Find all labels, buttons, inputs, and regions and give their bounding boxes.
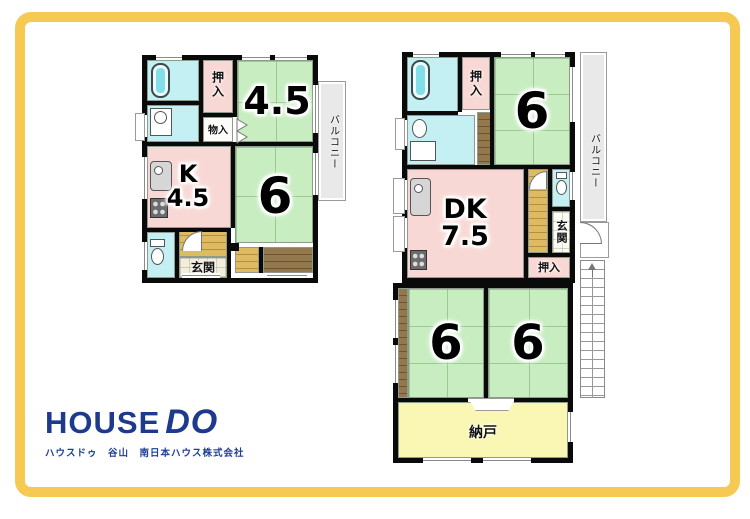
room-6-top-size: 6 <box>515 86 550 136</box>
wall-segment <box>514 398 568 402</box>
engawa-strip-wood <box>263 247 313 273</box>
stove-icon <box>150 198 168 218</box>
room-6-left-size: 6 <box>429 319 462 367</box>
kitchen-size: 4.5 <box>167 186 210 210</box>
logo-do-text: DO <box>165 403 218 441</box>
window-marker <box>242 55 270 60</box>
window-marker <box>275 55 307 60</box>
wall-segment <box>490 57 494 165</box>
window-marker <box>313 85 318 133</box>
balcony-label: バルコニー <box>587 134 602 189</box>
stairs-arrow-stem <box>592 269 593 277</box>
wall-segment <box>484 288 488 398</box>
wall-segment <box>227 228 231 278</box>
wall-segment <box>231 243 239 251</box>
wall-segment <box>548 169 552 253</box>
window-marker <box>142 242 147 270</box>
window-marker <box>483 458 531 463</box>
sink-basin-icon <box>154 111 167 124</box>
floor-plan-right: バルコニー <box>383 52 623 467</box>
wall-segment <box>233 60 237 117</box>
kitchen-faucet-icon <box>414 184 423 193</box>
genkan-label: 玄関 <box>553 220 569 244</box>
wall-segment <box>407 165 570 169</box>
window-marker <box>393 300 398 338</box>
toilet-bowl-icon <box>556 180 567 195</box>
wall-segment <box>147 101 199 105</box>
kitchen-letter: K <box>167 162 210 186</box>
wall-segment <box>407 111 458 115</box>
floor-plan-left: バルコニー 押入 物入 4.5 K <box>142 45 354 285</box>
wall-segment <box>231 146 235 228</box>
window-marker <box>501 52 531 57</box>
wall-segment <box>147 142 313 146</box>
stove-icon <box>410 250 427 270</box>
bay-counter <box>395 118 405 150</box>
logo-subtitle: ハウスドゥ 谷山 南日本ハウス株式会社 <box>45 445 245 459</box>
room-4-5-size: 4.5 <box>243 82 310 120</box>
engawa-strip-wood <box>398 288 408 398</box>
nando-label: 納戸 <box>469 422 497 442</box>
balcony-right-plan: バルコニー <box>580 52 607 222</box>
wall-segment <box>147 228 231 232</box>
bay-step <box>468 398 516 411</box>
window-marker <box>142 157 147 199</box>
wall-segment <box>524 169 528 278</box>
monoire-label: 物入 <box>208 122 228 137</box>
window-marker <box>313 153 318 195</box>
window-marker <box>267 273 307 278</box>
sink-basin-icon <box>412 119 427 138</box>
balcony-left-plan: バルコニー <box>318 81 346 201</box>
toilet-bowl-icon <box>151 248 164 265</box>
bay-counter <box>135 113 145 141</box>
window-marker <box>393 345 398 383</box>
window-marker <box>568 412 573 442</box>
oshiire-top-label: 押入 <box>468 70 485 98</box>
bathtub-icon <box>151 63 170 98</box>
window-marker <box>423 458 471 463</box>
kitchen-label: K 4.5 <box>167 162 210 210</box>
wall-segment <box>203 113 233 117</box>
bay-window <box>393 178 405 214</box>
dk-letters: DK <box>441 196 489 223</box>
kitchen-faucet-icon <box>154 166 163 175</box>
genkan-label: 玄関 <box>191 259 215 276</box>
oshiire-mid-label: 押入 <box>538 259 560 275</box>
window-marker <box>570 67 575 122</box>
oshiire-label: 押入 <box>210 71 227 99</box>
balcony-label: バルコニー <box>326 115 341 170</box>
stairs-rail <box>592 270 593 398</box>
logo-house-text: HOUSE <box>45 405 160 440</box>
bathtub-icon <box>411 60 430 100</box>
wall-segment <box>175 232 179 278</box>
wall-segment <box>524 253 570 257</box>
housedo-logo: HOUSEDO ハウスドゥ 谷山 南日本ハウス株式会社 <box>45 403 245 459</box>
room-6-right-size: 6 <box>511 319 544 367</box>
wall-segment <box>458 57 462 112</box>
room-6-size: 6 <box>258 171 293 221</box>
wall-segment <box>199 60 203 142</box>
toilet-tank-icon <box>556 172 567 179</box>
wall-segment <box>552 207 570 211</box>
wall-segment <box>259 247 263 273</box>
washstand-icon <box>410 141 436 161</box>
window-marker <box>156 55 182 60</box>
toilet-tank-icon <box>150 239 165 247</box>
window-marker <box>413 52 439 57</box>
bay-window <box>393 216 405 252</box>
dk-label: DK 7.5 <box>441 196 489 250</box>
wall-segment <box>398 398 468 402</box>
dk-size: 7.5 <box>441 223 489 250</box>
window-marker <box>535 52 565 57</box>
window-marker <box>570 172 575 200</box>
housedo-wordmark: HOUSEDO <box>45 403 245 442</box>
